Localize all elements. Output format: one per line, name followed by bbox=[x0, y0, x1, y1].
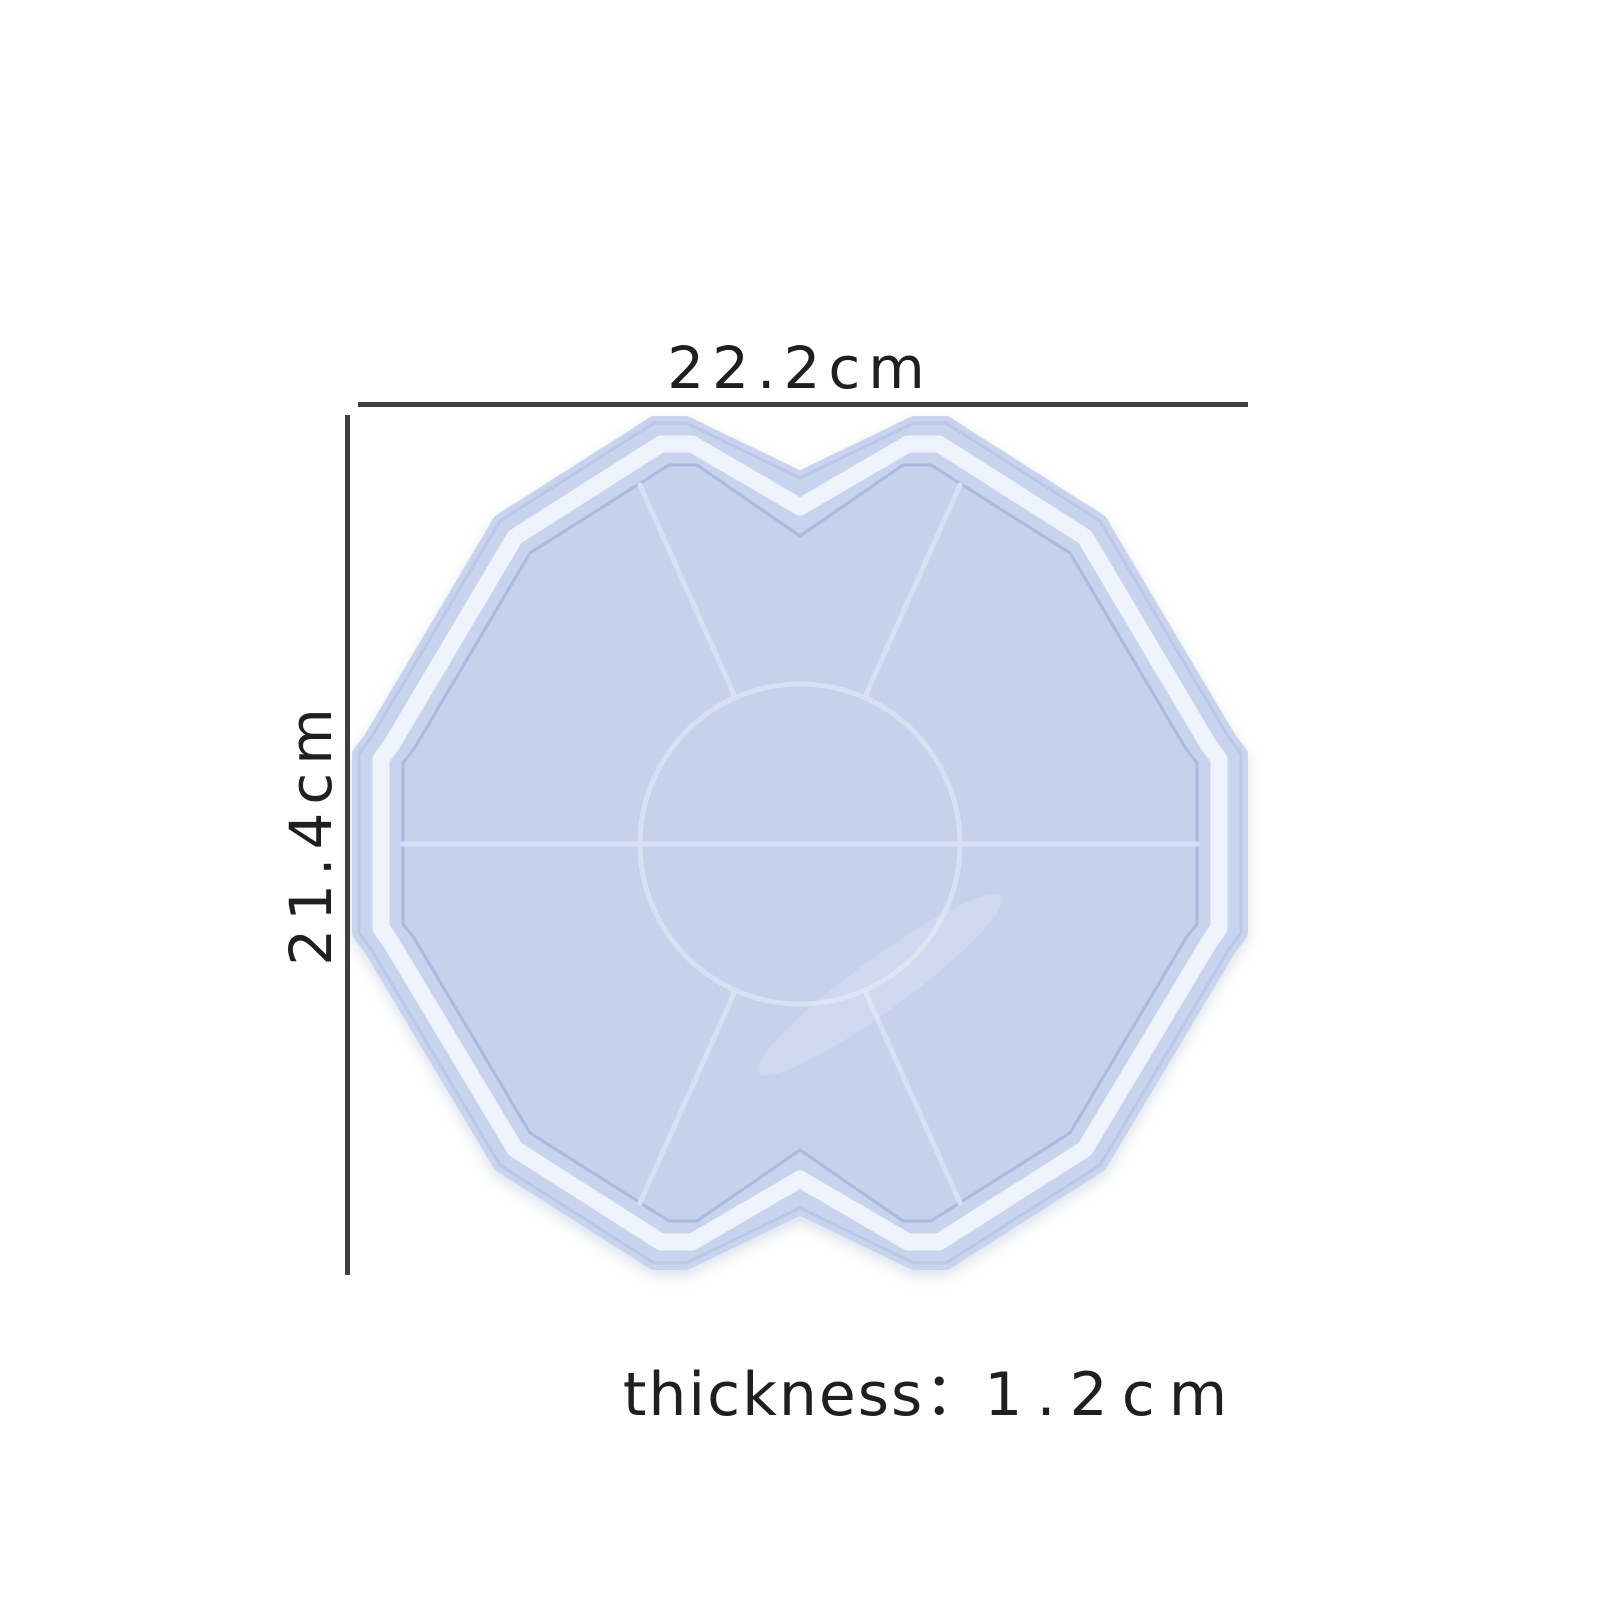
product-dimension-image: 22.2cm 21.4cm thickness：1.2cm bbox=[0, 0, 1600, 1600]
thickness-label: thickness bbox=[623, 1360, 924, 1430]
thickness-value: 1.2cm bbox=[984, 1360, 1241, 1430]
mold-shape bbox=[359, 423, 1241, 1263]
width-dimension-line bbox=[358, 402, 1248, 407]
height-dimension-label: 21.4cm bbox=[276, 633, 346, 1033]
thickness-separator: ： bbox=[924, 1360, 984, 1430]
width-dimension-label: 22.2cm bbox=[500, 334, 1100, 402]
thickness-caption: thickness：1.2cm bbox=[582, 1346, 1282, 1433]
